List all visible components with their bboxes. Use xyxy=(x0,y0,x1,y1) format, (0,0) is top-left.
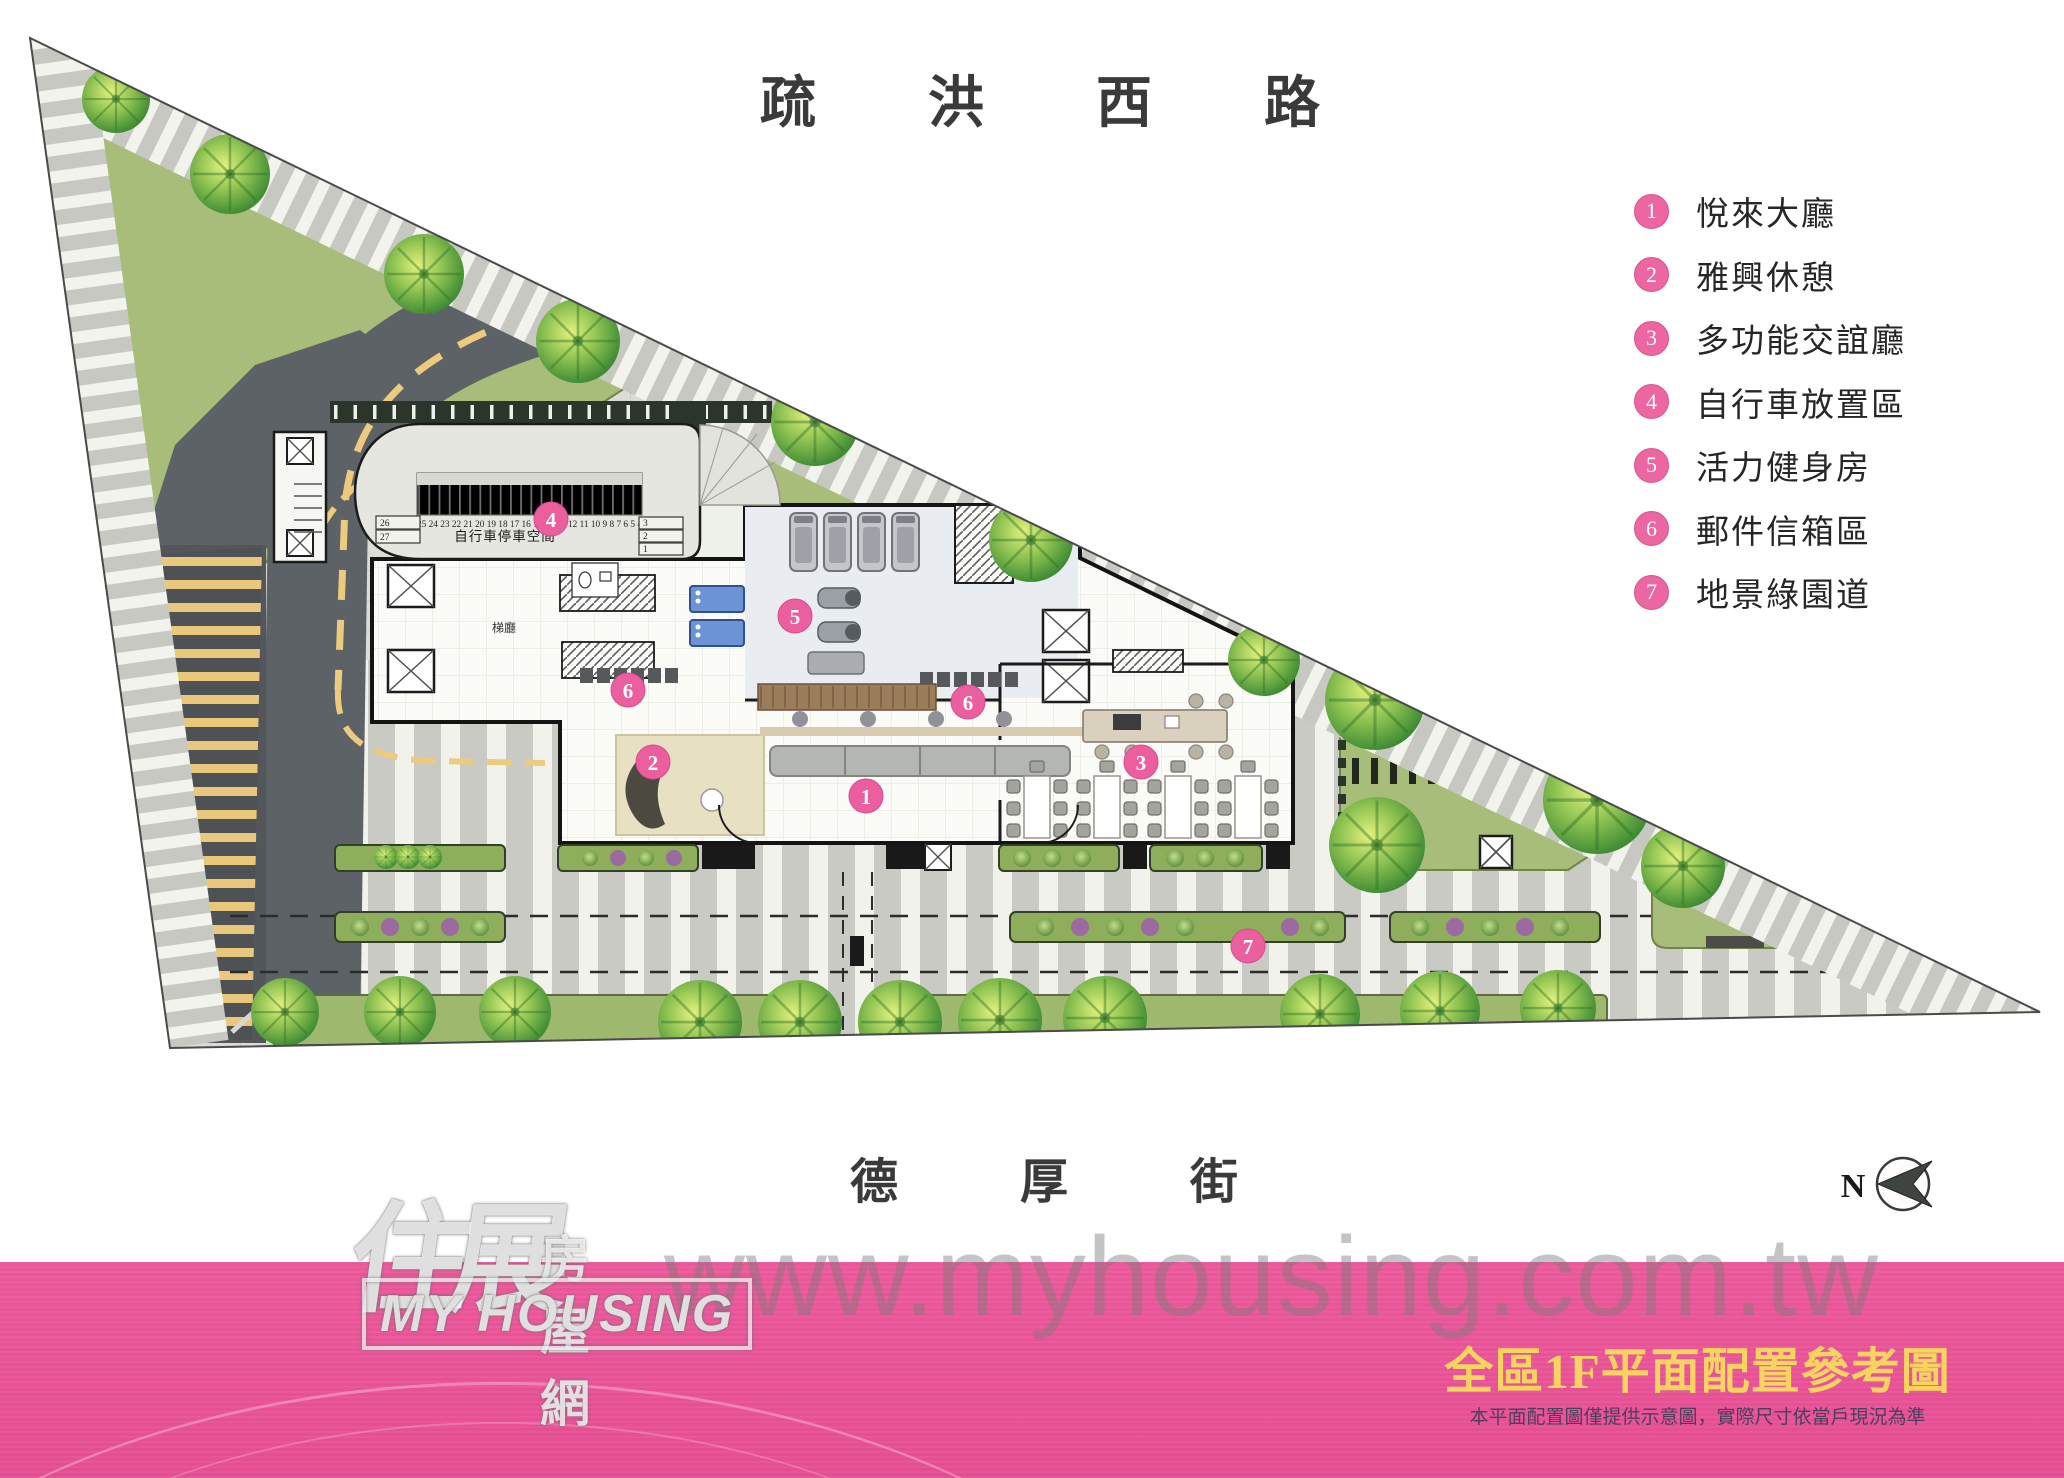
stall-3: 3 xyxy=(643,519,648,529)
svg-text:5: 5 xyxy=(790,605,801,629)
footer-disclaimer: 本平面配置圖僅提供示意圖，實際尺寸依當戶現況為準 xyxy=(1455,1402,1940,1429)
entry-gate xyxy=(850,936,864,966)
svg-text:3: 3 xyxy=(1136,751,1147,775)
stall-1: 1 xyxy=(643,545,648,555)
marker-7: 7 xyxy=(1231,929,1265,963)
bike-stall-numbers: 25 24 23 22 21 20 19 18 17 16 15 14 13 1… xyxy=(417,519,643,529)
north-label: N xyxy=(1841,1168,1866,1205)
lounge-area xyxy=(616,735,764,835)
floor-plan-page: 25 24 23 22 21 20 19 18 17 16 15 14 13 1… xyxy=(0,0,2064,1478)
marker-3: 3 xyxy=(1124,745,1158,779)
footer-title: 全區1F平面配置參考圖 xyxy=(1440,1332,1955,1403)
bike-parking-area: 25 24 23 22 21 20 19 18 17 16 15 14 13 1… xyxy=(355,424,700,559)
marker-1: 1 xyxy=(849,779,883,813)
stall-26: 26 xyxy=(380,519,390,529)
watermark-url: www.myhousing.com.tw xyxy=(664,1212,1879,1341)
marker-6b: 6 xyxy=(951,685,985,719)
hall-label: 梯廳 xyxy=(492,620,516,635)
stall-27: 27 xyxy=(380,533,390,543)
north-arrow: N xyxy=(1841,1158,1932,1210)
svg-text:1: 1 xyxy=(861,785,872,809)
stall-2: 2 xyxy=(643,532,648,542)
marker-4: 4 xyxy=(534,502,568,536)
svg-text:4: 4 xyxy=(546,508,557,532)
marker-5: 5 xyxy=(778,599,812,633)
svg-text:7: 7 xyxy=(1243,935,1254,959)
svg-text:6: 6 xyxy=(623,679,634,703)
marker-2: 2 xyxy=(636,745,670,779)
svg-text:6: 6 xyxy=(963,691,974,715)
service-shaft xyxy=(274,432,326,562)
watermark-logo: 住展 房屋網 MY HOUSING xyxy=(352,1162,552,1336)
svg-text:2: 2 xyxy=(648,751,659,775)
marker-6a: 6 xyxy=(611,673,645,707)
logo-en: MY HOUSING xyxy=(362,1278,752,1350)
